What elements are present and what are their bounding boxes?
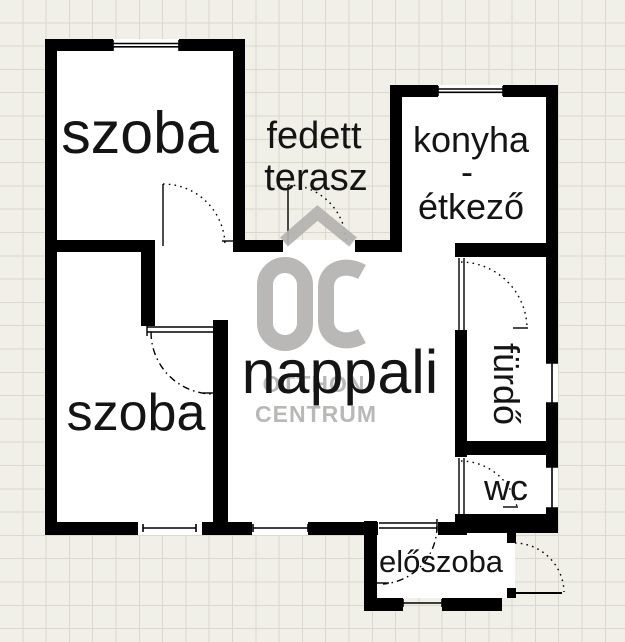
wall-west <box>45 39 57 535</box>
roof-chevron-icon <box>284 213 353 242</box>
wall-eloszoba-south-left <box>364 598 403 611</box>
room-label-terasz-line2: terasz <box>264 157 367 199</box>
wall-east-upper <box>546 85 558 363</box>
entrance-jamb-bottom <box>507 588 516 598</box>
wall-south-a <box>45 522 138 535</box>
room-label-furdo: fürdő <box>486 343 527 425</box>
room-label-terasz-line1: fedett <box>266 115 362 157</box>
wall-eloszoba-west <box>364 521 377 611</box>
wall-furdo-north <box>455 243 558 257</box>
wall-terasz-south-left <box>233 240 283 252</box>
wall-nappali-east <box>455 330 467 457</box>
window-eloszoba <box>403 599 442 607</box>
room-floor-konyha <box>390 85 558 257</box>
wall-south-d <box>438 522 467 535</box>
wall-szoba-top-east <box>233 39 245 252</box>
wall-north-szoba-left <box>45 39 113 51</box>
floorplan-drawing: OTTHON CENTRUM <box>0 0 625 642</box>
room-label-szoba-bottom: szoba <box>67 384 206 442</box>
wall-wc-south <box>455 514 558 533</box>
wall-mid-left <box>45 240 155 252</box>
wall-east-mid <box>546 403 558 467</box>
room-label-wc: wc <box>483 467 528 508</box>
entrance-jamb-top <box>507 533 516 543</box>
door-entrance <box>515 543 564 593</box>
wall-south-b <box>202 522 252 535</box>
wall-eloszoba-south-right <box>442 598 502 611</box>
wall-konyha-west <box>390 85 402 252</box>
wall-konyha-north-left <box>390 85 438 97</box>
wall-alcove <box>141 243 155 326</box>
room-label-nappali: nappali <box>242 338 439 406</box>
room-label-eloszoba: előszoba <box>379 544 504 579</box>
wall-szoba-nappali-divider <box>213 320 228 535</box>
wall-furdo-south <box>455 441 558 455</box>
room-label-szoba-top: szoba <box>61 100 219 166</box>
room-label-konyha-line3: étkező <box>418 186 524 227</box>
floorplan-canvas: OTTHON CENTRUM <box>0 0 625 642</box>
